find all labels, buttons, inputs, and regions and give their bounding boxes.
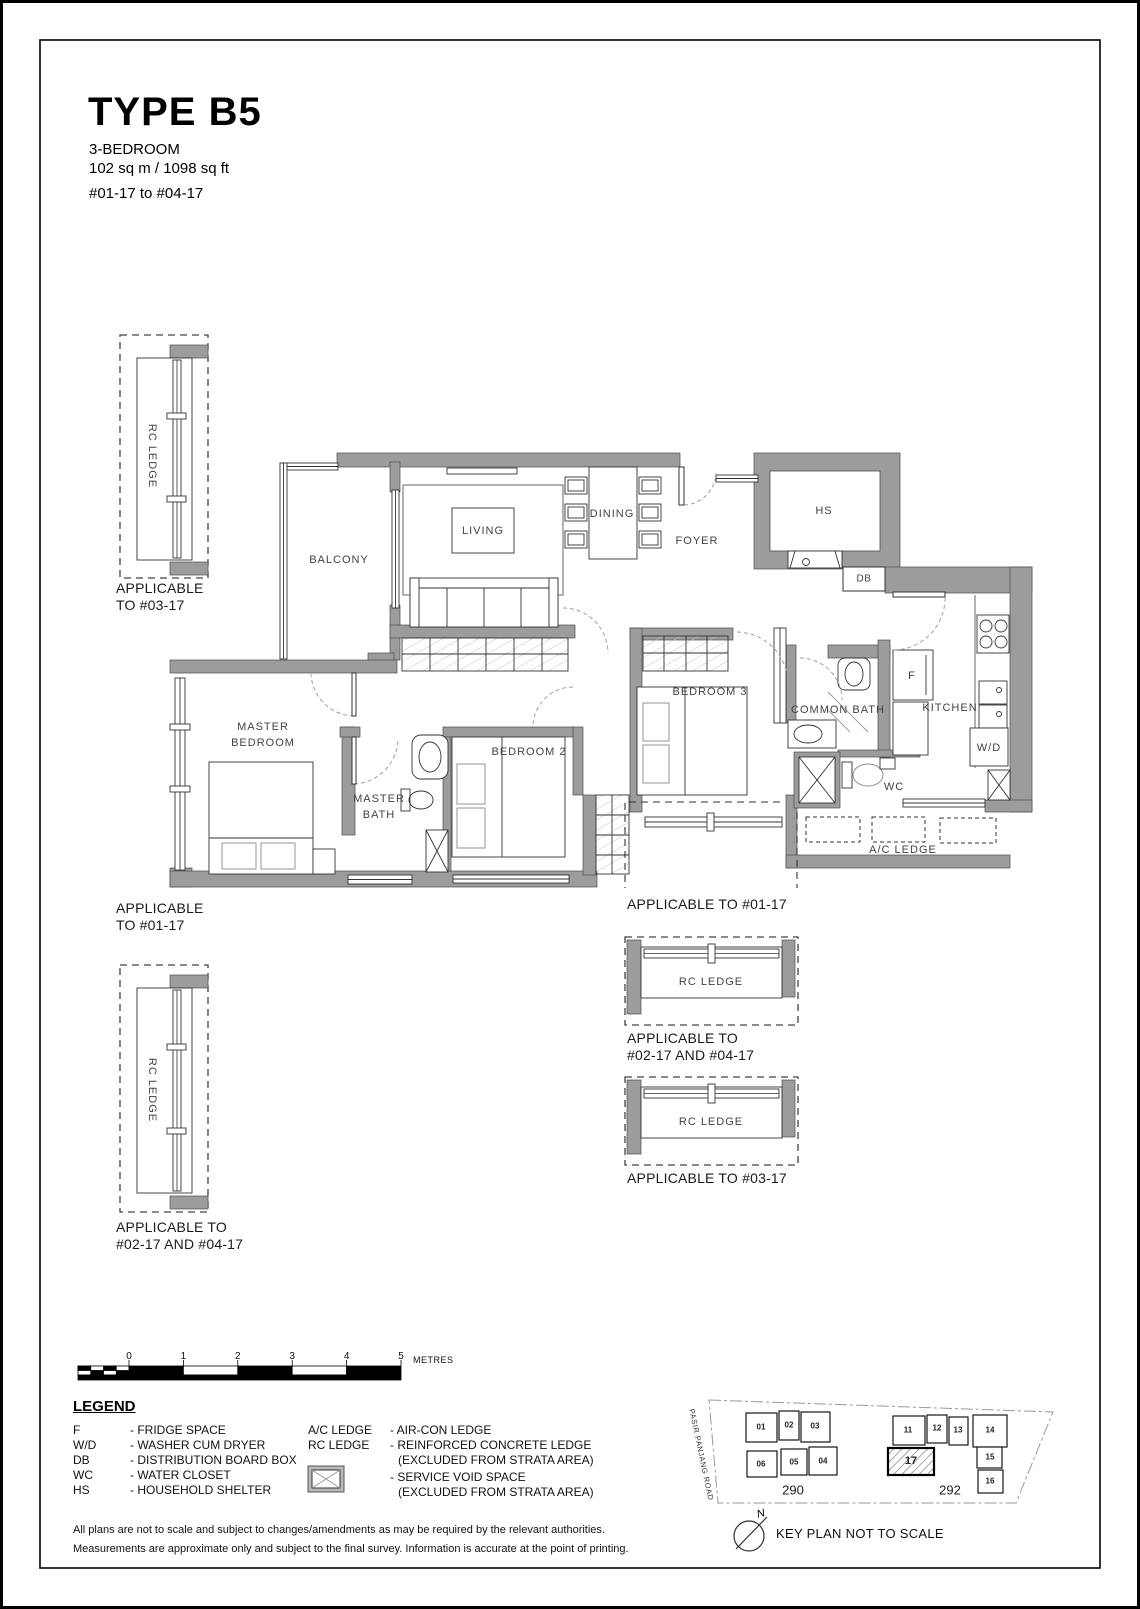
room-label-foyer: FOYER [676, 535, 719, 547]
room-label-living: LIVING [462, 525, 504, 537]
room-label-bedroom3: BEDROOM 3 [672, 686, 747, 698]
floorplan-page: TYPE B5 3-BEDROOM 102 sq m / 1098 sq ft … [0, 0, 1140, 1609]
disclaimer: All plans are not to scale and subject t… [73, 1521, 693, 1559]
bedroom3-bed [637, 687, 747, 795]
rc-ledge-label-r1: RC LEDGE [679, 976, 743, 988]
legend-def: - FRIDGE SPACE [130, 1423, 226, 1437]
legend-def: - REINFORCED CONCRETE LEDGE [390, 1438, 591, 1452]
master-bath-fixtures [401, 735, 448, 811]
scale-bar [78, 1360, 401, 1380]
hs-shoe-shelf [788, 551, 842, 568]
room-label-wd: W/D [977, 742, 1001, 754]
room-label-fridge: F [908, 670, 916, 682]
bedroom2-closet [596, 795, 629, 874]
room-label-db: DB [857, 574, 872, 585]
room-label-master-1: MASTER [237, 721, 289, 733]
sofa [410, 578, 558, 627]
applicable-mid-left: APPLICABLE TO #01-17 [116, 900, 204, 934]
legend-term: F [73, 1423, 80, 1437]
kp-unit-11: 11 [904, 1426, 912, 1435]
stack-range: #01-17 to #04-17 [89, 185, 203, 202]
room-label-master-2: BEDROOM [231, 737, 295, 749]
kp-unit-04: 04 [819, 1457, 828, 1466]
legend-heading: LEGEND [73, 1398, 136, 1415]
rc-ledge-top-left [120, 335, 208, 578]
bedroom3-wardrobe [643, 636, 728, 671]
legend-term: A/C LEDGE [308, 1423, 372, 1437]
block-number-290: 290 [782, 1483, 804, 1498]
kp-unit-01: 01 [757, 1423, 766, 1432]
applicable-right3: APPLICABLE TO #03-17 [627, 1170, 787, 1187]
floorplan-drawing [0, 0, 1140, 1609]
hall-wardrobe [402, 638, 568, 671]
applicable-right1: APPLICABLE TO #01-17 [627, 896, 787, 913]
legend-term: HS [73, 1483, 90, 1497]
room-label-ac-ledge: A/C LEDGE [869, 844, 937, 856]
kp-unit-03: 03 [811, 1422, 820, 1431]
legend-term: DB [73, 1453, 90, 1467]
scale-tick-0: 0 [126, 1351, 132, 1362]
kp-unit-15: 15 [986, 1453, 995, 1462]
kp-unit-12: 12 [933, 1424, 942, 1433]
north-arrow [734, 1517, 767, 1551]
ac-units [806, 817, 996, 843]
legend-def: - WASHER CUM DRYER [130, 1438, 265, 1452]
unit-area: 102 sq m / 1098 sq ft [89, 159, 229, 178]
tv-console [447, 468, 517, 474]
rc-ledge-label-r2: RC LEDGE [679, 1116, 743, 1128]
room-label-masterbath-2: BATH [363, 809, 396, 821]
master-bed [209, 762, 335, 874]
kp-unit-02: 02 [785, 1421, 794, 1430]
room-label-wc: WC [884, 781, 904, 793]
room-label-bedroom2: BEDROOM 2 [491, 746, 566, 758]
room-label-kitchen: KITCHEN [922, 702, 977, 714]
room-label-masterbath-1: MASTER [353, 793, 405, 805]
common-bath-fixtures [788, 658, 870, 748]
legend-def2: (EXCLUDED FROM STRATA AREA) [398, 1453, 594, 1467]
kp-unit-06: 06 [757, 1460, 766, 1469]
scale-tick-5: 5 [398, 1351, 404, 1362]
applicable-top-left: APPLICABLE TO #03-17 [116, 580, 204, 614]
legend-def: - HOUSEHOLD SHELTER [130, 1483, 271, 1497]
room-label-hs: HS [815, 505, 832, 517]
room-label-balcony: BALCONY [309, 554, 369, 566]
applicable-bottom-left: APPLICABLE TO #02-17 AND #04-17 [116, 1219, 243, 1253]
legend-term: WC [73, 1468, 93, 1482]
bedroom-count: 3-BEDROOM [89, 140, 180, 159]
scale-tick-4: 4 [344, 1351, 350, 1362]
applicable-right2: APPLICABLE TO #02-17 AND #04-17 [627, 1030, 754, 1064]
kp-unit-16: 16 [986, 1477, 995, 1486]
legend-term: W/D [73, 1438, 96, 1452]
legend-def: - WATER CLOSET [130, 1468, 231, 1482]
page-title: TYPE B5 [88, 90, 262, 135]
keyplan-caption: KEY PLAN NOT TO SCALE [776, 1526, 944, 1541]
rc-ledge-label-tl: RC LEDGE [146, 424, 158, 488]
scale-unit: METRES [413, 1355, 454, 1365]
legend-term: RC LEDGE [308, 1438, 369, 1452]
legend-def: - AIR-CON LEDGE [390, 1423, 491, 1437]
block-number-292: 292 [939, 1483, 961, 1498]
scale-tick-3: 3 [289, 1351, 295, 1362]
room-label-common-bath: COMMON BATH [791, 704, 885, 716]
legend-def: - SERVICE VOID SPACE [390, 1470, 526, 1484]
legend-def2: (EXCLUDED FROM STRATA AREA) [398, 1485, 594, 1499]
rc-ledge-bottom-left [120, 965, 208, 1212]
scale-tick-1: 1 [181, 1351, 187, 1362]
kp-unit-13: 13 [954, 1426, 963, 1435]
rc-ledge-label-bl: RC LEDGE [146, 1058, 158, 1122]
kp-unit-17-highlight: 17 [905, 1455, 917, 1467]
sink [979, 681, 1007, 704]
kp-unit-05: 05 [790, 1458, 799, 1467]
room-label-dining: DINING [590, 508, 635, 520]
kp-unit-14: 14 [986, 1426, 995, 1435]
scale-tick-2: 2 [235, 1351, 241, 1362]
legend-def: - DISTRIBUTION BOARD BOX [130, 1453, 297, 1467]
service-void-icon [308, 1466, 344, 1492]
